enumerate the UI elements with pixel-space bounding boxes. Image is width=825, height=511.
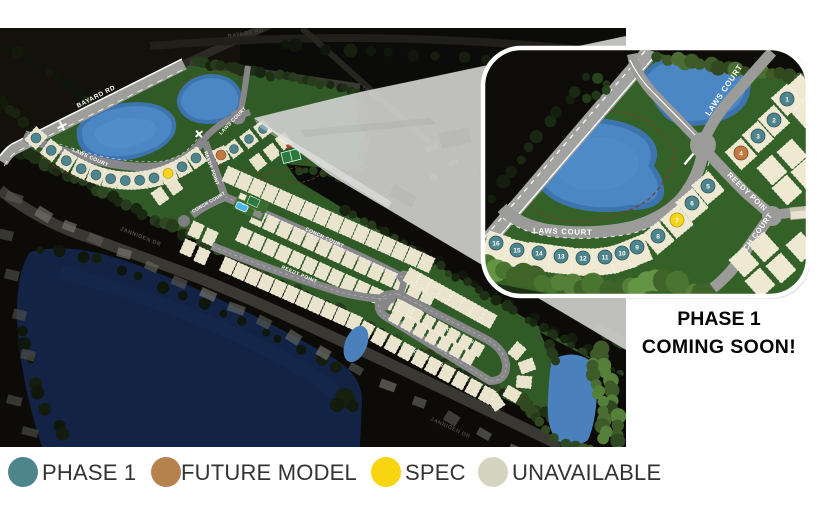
- svg-text:1: 1: [785, 96, 789, 103]
- svg-text:8: 8: [656, 233, 660, 240]
- svg-text:COMING SOON!: COMING SOON!: [642, 336, 796, 358]
- svg-text:13: 13: [557, 253, 565, 260]
- svg-text:9: 9: [635, 244, 639, 251]
- svg-text:4: 4: [739, 150, 743, 157]
- svg-text:7: 7: [675, 217, 679, 224]
- svg-text:11: 11: [602, 254, 609, 261]
- svg-text:SPEC: SPEC: [405, 460, 466, 485]
- svg-text:10: 10: [618, 250, 626, 257]
- svg-text:5: 5: [706, 183, 710, 190]
- svg-text:PHASE 1: PHASE 1: [42, 460, 136, 485]
- svg-text:16: 16: [492, 240, 500, 247]
- svg-text:12: 12: [579, 255, 587, 262]
- svg-text:UNAVAILABLE: UNAVAILABLE: [512, 460, 661, 485]
- svg-text:14: 14: [535, 250, 543, 257]
- svg-text:PHASE 1: PHASE 1: [677, 308, 761, 330]
- svg-text:15: 15: [513, 247, 521, 254]
- svg-text:2: 2: [772, 117, 776, 124]
- svg-text:3: 3: [756, 133, 760, 140]
- svg-text:6: 6: [690, 200, 694, 207]
- svg-text:FUTURE MODEL: FUTURE MODEL: [181, 460, 357, 485]
